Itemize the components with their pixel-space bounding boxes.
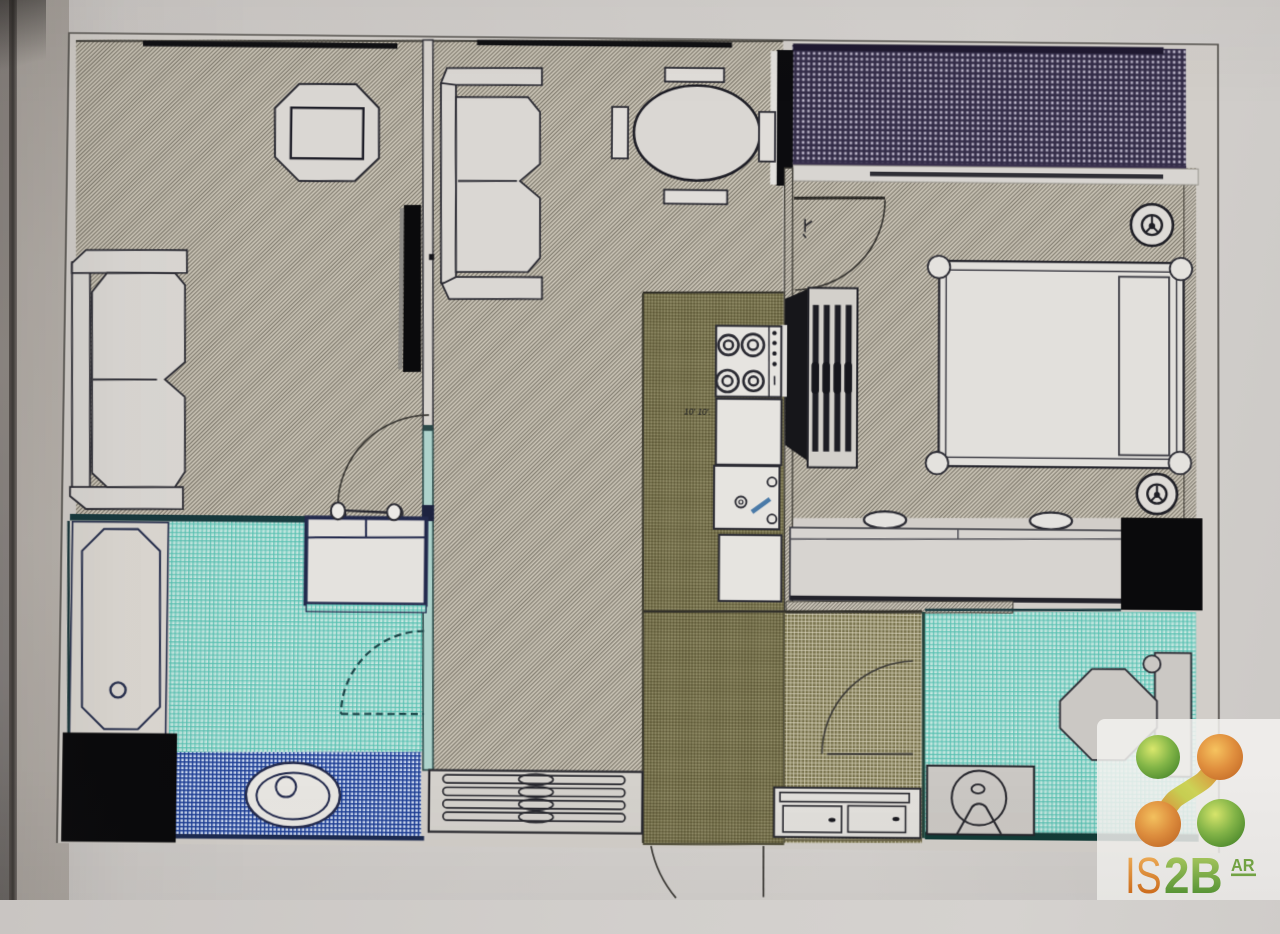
svg-text:AR: AR	[1231, 855, 1254, 875]
svg-text:2B: 2B	[1164, 848, 1223, 900]
svg-text:IS: IS	[1125, 847, 1162, 900]
